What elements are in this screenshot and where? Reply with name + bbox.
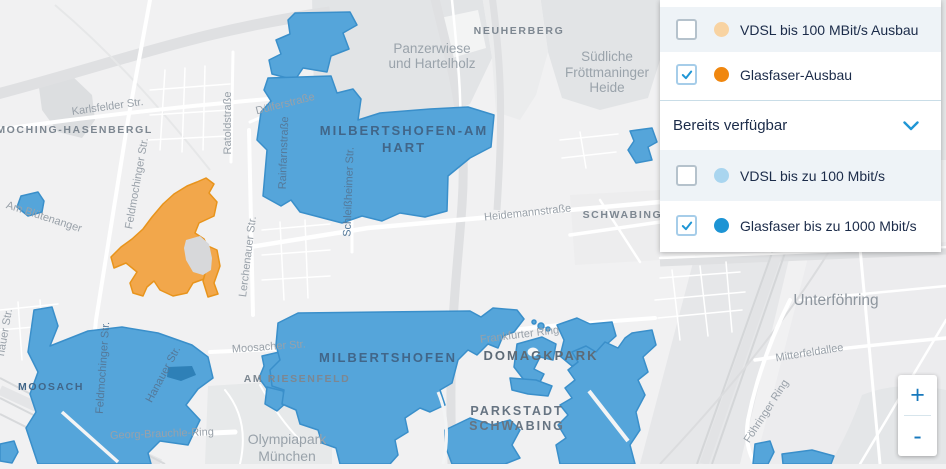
map-label: Fröttmaninger (565, 65, 650, 80)
map-label: Olympiapark (248, 431, 328, 447)
map-label: PARKSTADT (470, 404, 563, 418)
zoom-out-button[interactable]: - (898, 416, 937, 456)
map-label: München (258, 448, 316, 464)
map-label: Heide (589, 80, 624, 95)
map-label: Unterföhring (793, 292, 878, 309)
legend-row-glasfaser-available: Glasfaser bis zu 1000 Mbit/s (660, 201, 941, 250)
legend-dot-vdsl-available (714, 168, 729, 183)
legend-label: VDSL bis zu 100 Mbit/s (740, 168, 885, 184)
map-label: MILBERTSHOFEN-AM (320, 123, 489, 138)
map-label: Ratoldstraße (222, 92, 234, 155)
legend-row-vdsl-ausbau: VDSL bis 100 MBit/s Ausbau (660, 7, 941, 52)
map-label: AM RIESENFELD (244, 373, 351, 385)
map-label: SCHWABING (469, 419, 565, 433)
checkbox-vdsl-available[interactable] (676, 165, 697, 186)
legend-label: Glasfaser bis zu 1000 Mbit/s (740, 218, 917, 234)
legend-dot-glasfaser-available (714, 218, 729, 233)
legend-label: Glasfaser-Ausbau (740, 67, 852, 83)
map-label: Panzerwiese (393, 41, 470, 56)
map-label: SCHWABING- (583, 209, 668, 221)
chevron-down-icon[interactable] (903, 121, 919, 131)
checkbox-glasfaser-ausbau[interactable] (676, 64, 697, 85)
legend-dot-vdsl-ausbau (714, 22, 729, 37)
zoom-in-button[interactable]: + (898, 375, 937, 415)
legend-row-glasfaser-ausbau: Glasfaser-Ausbau (660, 52, 941, 97)
legend-panel: VDSL bis 100 MBit/s Ausbau Glasfaser-Aus… (660, 0, 941, 252)
map-label: DOMAGKPARK (483, 348, 598, 363)
map-label: Rainfarnstraße (277, 116, 292, 189)
checkbox-glasfaser-available[interactable] (676, 215, 697, 236)
map-label: MILBERTSHOFEN (319, 350, 457, 365)
map-label: NEUHERBERG (474, 25, 565, 37)
legend-dot-glasfaser-ausbau (714, 67, 729, 82)
zoom-controls: + - (898, 375, 937, 456)
checkmark-icon (680, 68, 694, 82)
map-label: Südliche (581, 49, 633, 64)
map-label: MOOSACH (18, 381, 84, 393)
map-label: und Hartelholz (388, 56, 475, 71)
map-label: LDMOCHING-HASENBERGL (0, 124, 153, 136)
legend-row-vdsl-available: VDSL bis zu 100 Mbit/s (660, 150, 941, 201)
legend-section-title: Bereits verfügbar (673, 117, 787, 134)
checkbox-vdsl-ausbau[interactable] (676, 19, 697, 40)
checkmark-icon (680, 219, 694, 233)
legend-section-header[interactable]: Bereits verfügbar (660, 101, 941, 150)
legend-label: VDSL bis 100 MBit/s Ausbau (740, 22, 918, 38)
map-label: HART (382, 140, 426, 155)
